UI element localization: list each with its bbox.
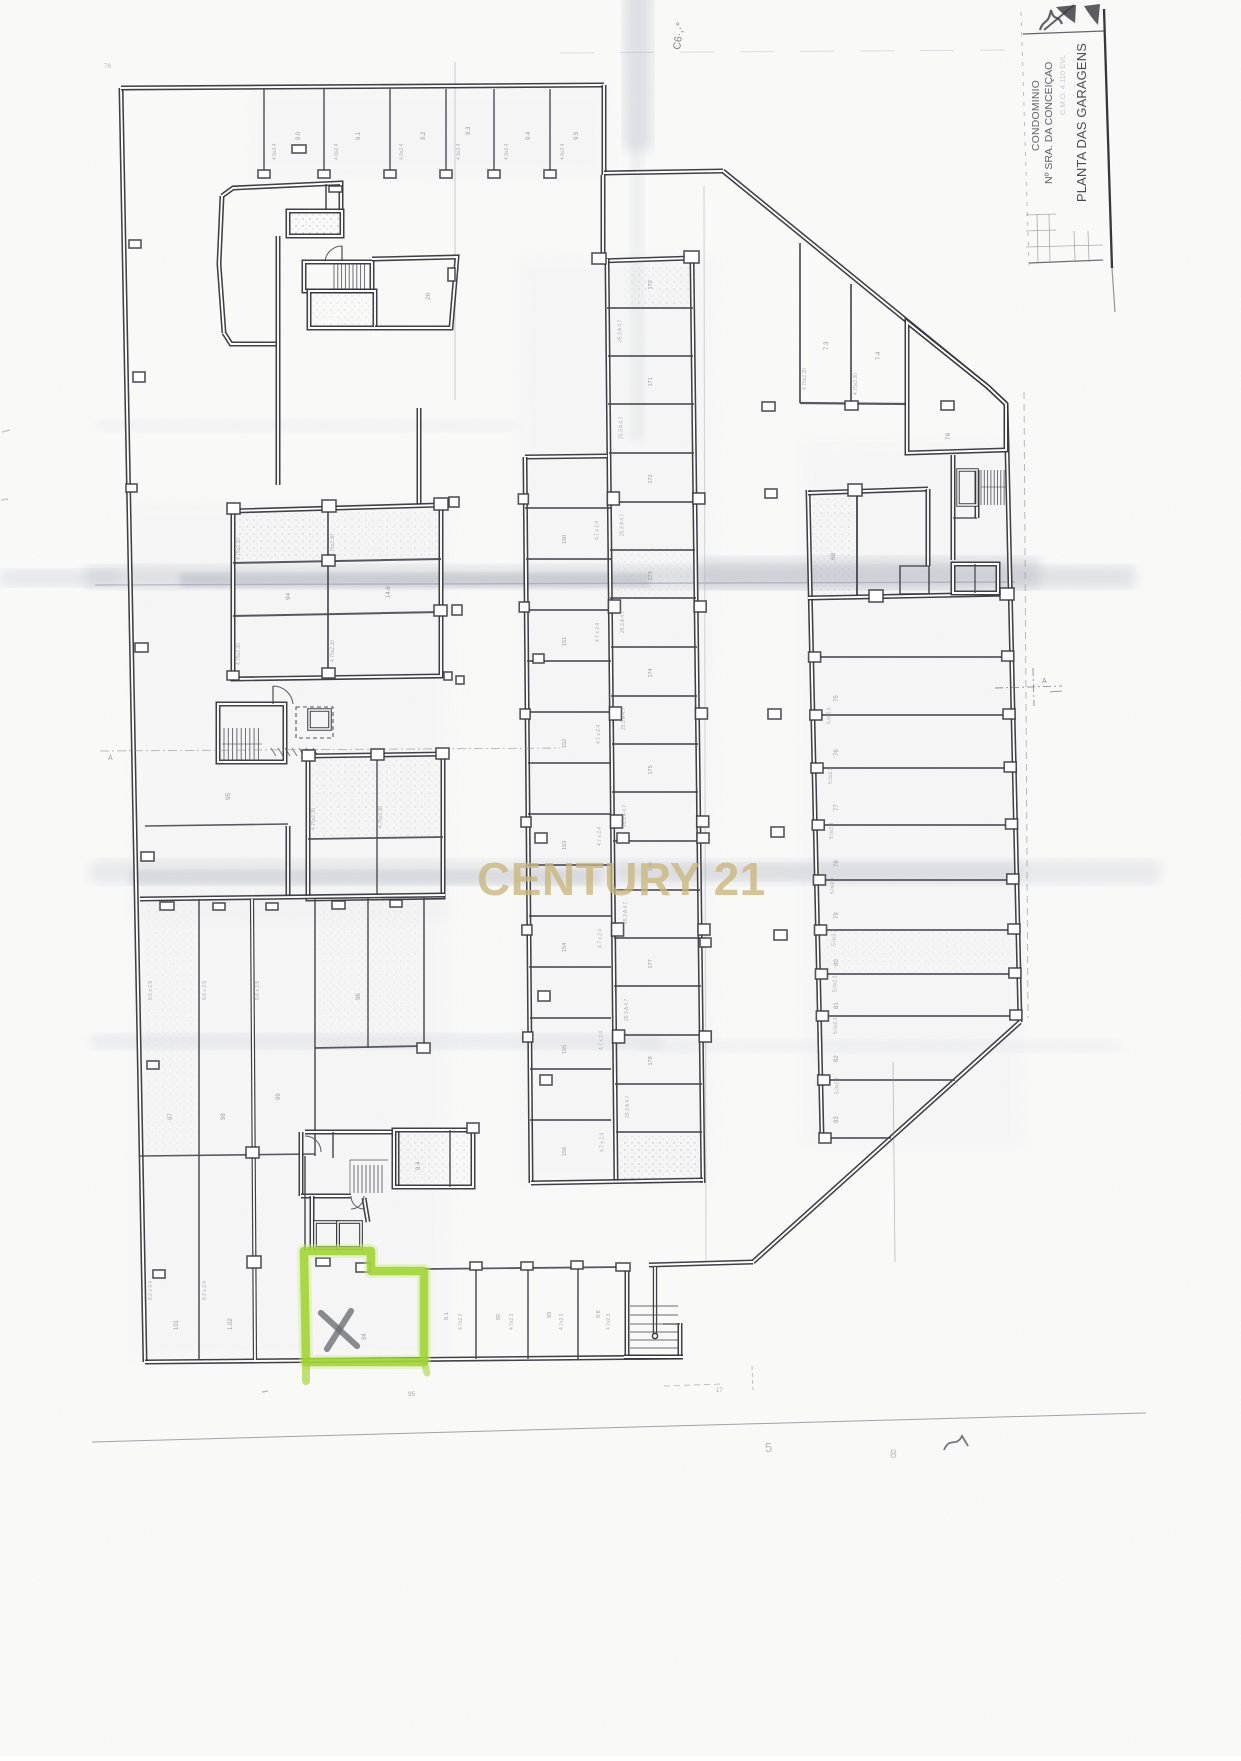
svg-text:4.7 x 2.4: 4.7 x 2.4 <box>594 521 600 540</box>
svg-text:155: 155 <box>562 1045 568 1054</box>
svg-text:94: 94 <box>285 592 292 600</box>
svg-text:94: 94 <box>362 1333 368 1340</box>
svg-text:75: 75 <box>834 695 840 702</box>
svg-text:4.75x2.30: 4.75x2.30 <box>378 806 384 828</box>
svg-text:5: 5 <box>765 1440 772 1455</box>
svg-text:78: 78 <box>834 860 840 867</box>
svg-text:Nº SRA. DA CONCEIÇAO: Nº SRA. DA CONCEIÇAO <box>1043 62 1055 184</box>
svg-text:153: 153 <box>562 841 568 850</box>
svg-text:4.9x2.4: 4.9x2.4 <box>272 143 278 160</box>
svg-text:156: 156 <box>562 1147 568 1156</box>
svg-text:9.6: 9.6 <box>596 1310 602 1318</box>
svg-text:CONDOMINIO: CONDOMINIO <box>1031 80 1042 151</box>
svg-text:5.0x2.3: 5.0x2.3 <box>833 1017 839 1034</box>
svg-text:4.7x2.3: 4.7x2.3 <box>606 1313 612 1330</box>
svg-text:8: 8 <box>890 1447 897 1461</box>
svg-text:76: 76 <box>104 63 112 70</box>
svg-text:174: 174 <box>648 668 654 677</box>
svg-text:150: 150 <box>562 535 568 544</box>
svg-text:A: A <box>108 755 113 762</box>
svg-text:9.1: 9.1 <box>356 131 362 140</box>
svg-text:68: 68 <box>830 552 837 560</box>
svg-text:4.7x2.3: 4.7x2.3 <box>509 1313 515 1330</box>
svg-text:9.6 x 2.5: 9.6 x 2.5 <box>148 981 154 1000</box>
svg-text:25.3 A 4.7: 25.3 A 4.7 <box>621 708 627 730</box>
svg-text:4.7 x 2.4: 4.7 x 2.4 <box>597 827 603 846</box>
svg-text:4.75x2.30: 4.75x2.30 <box>236 643 242 665</box>
svg-text:5.0x2.3: 5.0x2.3 <box>832 975 838 992</box>
svg-text:4.7 x 2.4: 4.7 x 2.4 <box>596 725 602 744</box>
svg-text:26: 26 <box>425 292 432 300</box>
svg-text:1.02: 1.02 <box>228 1318 234 1330</box>
svg-text:4.7 x 2.4: 4.7 x 2.4 <box>599 1031 605 1050</box>
svg-text:172: 172 <box>648 474 654 483</box>
svg-text:177: 177 <box>648 959 654 968</box>
svg-text:76: 76 <box>834 749 840 756</box>
svg-text:25.3 A 4.7: 25.3 A 4.7 <box>620 611 626 633</box>
svg-text:4.7 x 2.4: 4.7 x 2.4 <box>598 929 604 948</box>
svg-text:98: 98 <box>221 1113 227 1120</box>
svg-text:4.75x2.30: 4.75x2.30 <box>236 538 242 560</box>
svg-text:C.M.O. 4.110 EVL: C.M.O. 4.110 EVL <box>1058 55 1067 115</box>
svg-text:5.0x2.3: 5.0x2.3 <box>828 767 834 784</box>
svg-text:25.3 A 4.7: 25.3 A 4.7 <box>624 999 630 1021</box>
svg-text:175: 175 <box>648 765 654 774</box>
svg-text:8.4: 8.4 <box>416 1161 422 1170</box>
svg-text:5.0x2.3: 5.0x2.3 <box>830 877 836 894</box>
svg-text:5.0x2.3: 5.0x2.3 <box>827 707 833 724</box>
svg-text:5.0x2.3: 5.0x2.3 <box>831 929 837 946</box>
svg-text:4.9x2.4: 4.9x2.4 <box>456 143 462 160</box>
svg-text:9.5: 9.5 <box>574 131 580 140</box>
svg-text:9.3: 9.3 <box>466 126 472 135</box>
svg-text:4.75x2.30: 4.75x2.30 <box>330 640 336 662</box>
svg-text:4.7x2.3: 4.7x2.3 <box>559 1313 565 1330</box>
svg-text:4.9x2.4: 4.9x2.4 <box>560 143 566 160</box>
svg-text:9.4: 9.4 <box>526 131 532 140</box>
svg-text:81: 81 <box>834 1002 840 1009</box>
svg-text:9.0: 9.0 <box>296 131 302 140</box>
svg-text:9.2: 9.2 <box>421 131 427 140</box>
svg-text:17: 17 <box>716 1388 723 1394</box>
svg-text:4.75x2.30: 4.75x2.30 <box>802 368 808 390</box>
svg-text:95: 95 <box>225 792 232 800</box>
svg-text:5.0x2.3: 5.0x2.3 <box>835 1077 841 1094</box>
svg-text:7.4: 7.4 <box>876 351 882 360</box>
svg-text:4.7 x 2.4: 4.7 x 2.4 <box>595 623 601 642</box>
svg-text:99: 99 <box>276 1093 282 1100</box>
svg-text:25.3 A 4.7: 25.3 A 4.7 <box>619 514 625 536</box>
svg-text:5.0x2.3: 5.0x2.3 <box>829 822 835 839</box>
svg-text:95: 95 <box>408 1391 416 1398</box>
svg-text:9.6 x 2.5: 9.6 x 2.5 <box>202 981 208 1000</box>
svg-text:8.2 x 2.4: 8.2 x 2.4 <box>202 1281 208 1300</box>
svg-text:9.1: 9.1 <box>444 1312 450 1320</box>
svg-text:4.9x2.4: 4.9x2.4 <box>399 143 405 160</box>
svg-text:4.7x2.3: 4.7x2.3 <box>458 1313 464 1330</box>
svg-text:9.6 x 2.5: 9.6 x 2.5 <box>255 981 261 1000</box>
svg-text:PLANTA DAS GARAGENS: PLANTA DAS GARAGENS <box>1074 43 1089 202</box>
svg-text:93: 93 <box>547 1312 553 1318</box>
svg-text:171: 171 <box>648 377 654 386</box>
svg-text:25.3 A 4.7: 25.3 A 4.7 <box>617 320 623 342</box>
svg-text:151: 151 <box>562 637 568 646</box>
svg-text:7.3: 7.3 <box>824 341 830 350</box>
svg-text:178: 178 <box>648 1056 654 1065</box>
svg-text:CENTURY 21: CENTURY 21 <box>477 853 766 905</box>
svg-text:4.7 x 2.4: 4.7 x 2.4 <box>599 1133 605 1152</box>
svg-text:77: 77 <box>834 804 840 811</box>
svg-text:79: 79 <box>834 912 840 919</box>
svg-text:78: 78 <box>945 432 952 440</box>
svg-text:A: A <box>1042 678 1047 685</box>
svg-text:4.9x2.4: 4.9x2.4 <box>504 143 510 160</box>
svg-text:101: 101 <box>174 1319 180 1330</box>
svg-text:4.75x2.30: 4.75x2.30 <box>330 534 336 556</box>
svg-text:4.9x2.4: 4.9x2.4 <box>334 143 340 160</box>
svg-text:82: 82 <box>834 1055 840 1062</box>
svg-text:25.3 A 4.7: 25.3 A 4.7 <box>618 417 624 439</box>
svg-text:8.2 x 2.4: 8.2 x 2.4 <box>148 1281 154 1300</box>
svg-text:4.75x2.30: 4.75x2.30 <box>853 373 859 395</box>
svg-text:154: 154 <box>562 943 568 952</box>
svg-text:25.3 A 4.7: 25.3 A 4.7 <box>625 1096 631 1118</box>
svg-text:4.75x2.30: 4.75x2.30 <box>311 808 317 830</box>
svg-text:83: 83 <box>834 1116 840 1123</box>
svg-text:25.3 A 4.7: 25.3 A 4.7 <box>622 805 628 827</box>
svg-text:14.6: 14.6 <box>386 586 392 598</box>
svg-text:92: 92 <box>496 1314 502 1320</box>
svg-text:152: 152 <box>562 739 568 748</box>
